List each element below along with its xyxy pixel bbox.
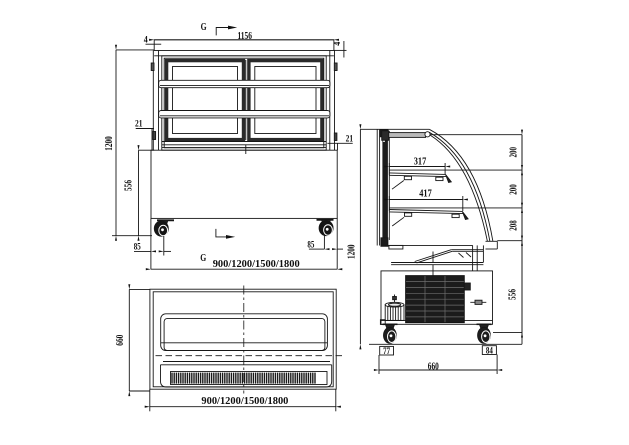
svg-text:208: 208 (508, 220, 520, 231)
svg-text:417: 417 (419, 187, 432, 199)
svg-text:660: 660 (428, 360, 439, 372)
svg-text:200: 200 (508, 184, 520, 195)
svg-text:4: 4 (144, 35, 148, 45)
svg-text:G: G (200, 253, 206, 264)
svg-text:900/1200/1500/1800: 900/1200/1500/1800 (213, 258, 300, 270)
svg-text:85: 85 (134, 243, 141, 253)
svg-text:1156: 1156 (237, 30, 252, 42)
svg-text:21: 21 (135, 120, 143, 130)
svg-text:317: 317 (414, 156, 427, 168)
svg-text:1200: 1200 (346, 244, 358, 259)
svg-text:4: 4 (333, 42, 343, 46)
svg-text:77: 77 (383, 347, 390, 357)
svg-text:556: 556 (507, 289, 519, 300)
svg-text:85: 85 (307, 240, 314, 250)
svg-text:21: 21 (346, 134, 354, 144)
svg-text:900/1200/1500/1800: 900/1200/1500/1800 (201, 395, 288, 407)
svg-text:G: G (201, 22, 207, 33)
svg-text:1200: 1200 (103, 136, 115, 151)
svg-text:556: 556 (122, 180, 134, 191)
svg-text:200: 200 (507, 147, 519, 158)
svg-text:660: 660 (114, 334, 126, 345)
svg-text:84: 84 (486, 346, 493, 356)
